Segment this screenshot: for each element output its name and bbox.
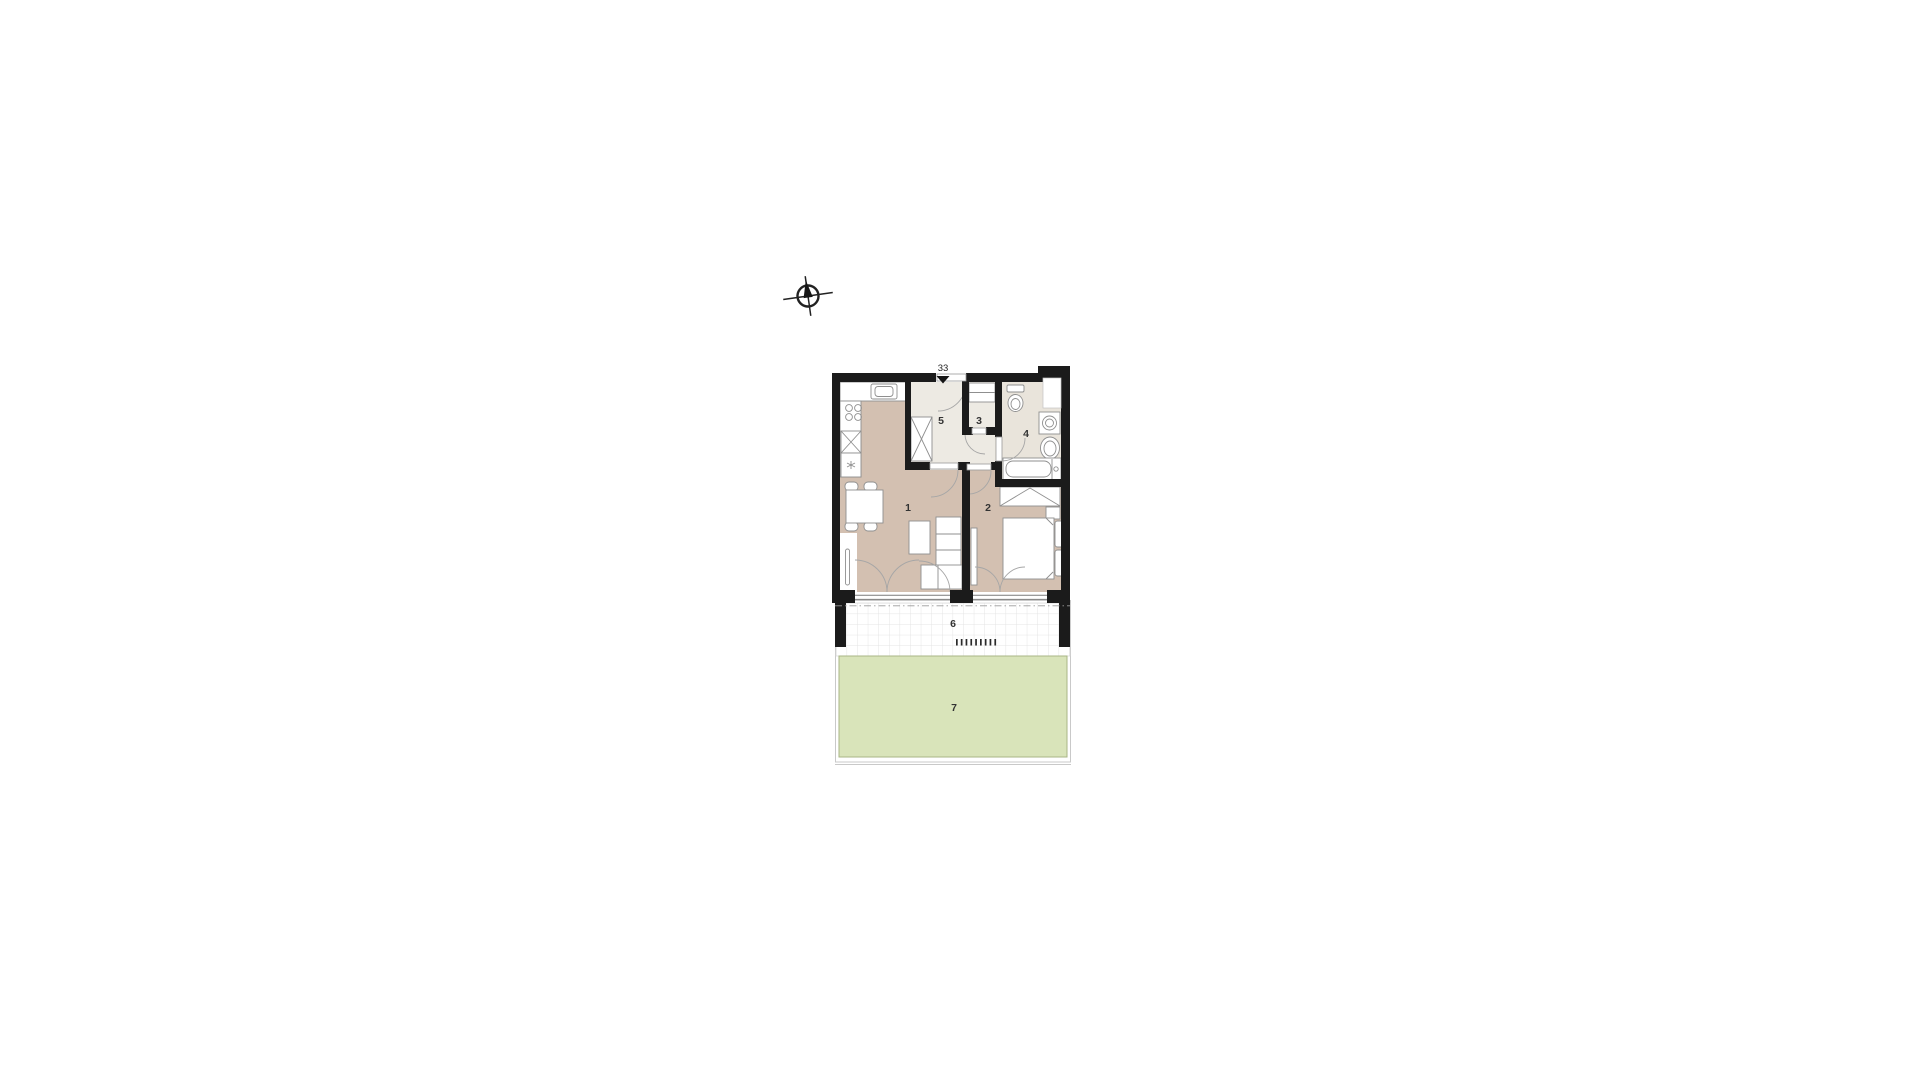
room-label-garden: 7 — [951, 702, 957, 714]
hall-closet — [911, 417, 932, 461]
compass-rose-icon — [780, 273, 835, 320]
room-label-terrace: 6 — [950, 618, 956, 630]
unit-number-label: 33 — [938, 363, 949, 374]
door-leaf — [930, 463, 958, 469]
storage-shelf — [969, 383, 995, 402]
door-leaf — [972, 428, 986, 434]
fridge-icon — [841, 453, 861, 477]
terrace-drain-marks — [956, 639, 996, 646]
compass-north-needle — [801, 280, 813, 299]
radiator-icon — [971, 528, 977, 585]
bathtub-icon — [1003, 458, 1061, 480]
floor-plan-canvas: 33 1 2 3 4 5 6 7 — [0, 0, 1920, 1080]
room-label-storage: 3 — [976, 415, 982, 427]
door-leaf — [996, 437, 1002, 461]
dishwasher-icon — [841, 431, 861, 453]
room-label-hall: 5 — [938, 415, 944, 427]
door-leaf — [967, 464, 991, 470]
room-label-living: 1 — [905, 502, 911, 514]
shaft-recess — [1043, 378, 1061, 408]
radiator-icon — [846, 549, 850, 585]
toilet-icon — [1007, 385, 1024, 412]
bathroom-sink-icon — [1041, 437, 1060, 459]
room-label-bathroom: 4 — [1023, 428, 1029, 440]
dining-table — [846, 490, 883, 523]
room-label-bedroom: 2 — [985, 502, 991, 514]
wardrobe — [1000, 487, 1060, 506]
coffee-table — [909, 521, 930, 554]
nightstand — [1046, 507, 1060, 519]
washing-machine-icon — [1039, 412, 1060, 434]
